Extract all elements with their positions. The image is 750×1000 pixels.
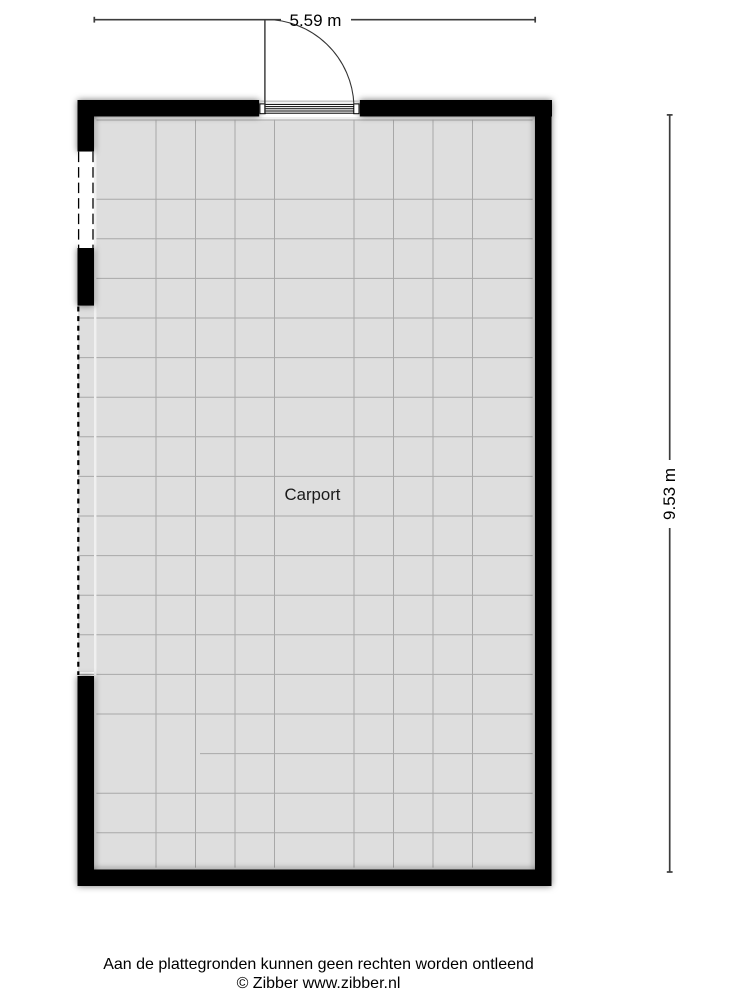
svg-text:5.59 m: 5.59 m <box>290 11 342 30</box>
svg-text:9.53 m: 9.53 m <box>660 468 679 520</box>
svg-text:Carport: Carport <box>285 485 341 504</box>
